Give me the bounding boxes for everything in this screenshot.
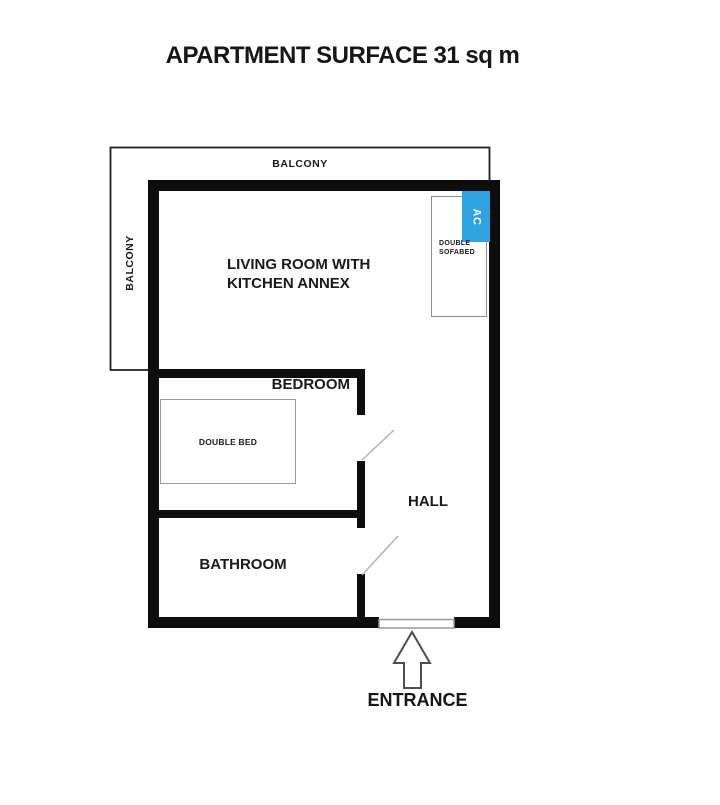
entrance-arrow-icon <box>394 632 430 688</box>
double-sofabed-label-line1: DOUBLE <box>439 239 488 248</box>
hall-label: HALL <box>408 493 468 510</box>
double-sofabed-label-line2: SOFABED <box>439 248 488 257</box>
bedroom-door-swing-line <box>362 430 394 460</box>
double-bed-label: DOUBLE BED <box>199 437 257 447</box>
wall-bathroom-hall-lower <box>357 574 365 628</box>
ac-unit-label: AC <box>470 208 482 225</box>
wall-bedroom-hall-upper <box>357 369 365 415</box>
balcony-left-label: BALCONY <box>122 225 138 301</box>
floor-plan-page: APARTMENT SURFACE 31 sq m BALCONY BALCON… <box>0 0 720 805</box>
ac-unit: AC <box>462 191 490 242</box>
entrance-threshold <box>379 620 454 629</box>
entrance-label: ENTRANCE <box>340 690 495 711</box>
wall-left <box>148 180 159 628</box>
double-sofabed-label: DOUBLE SOFABED <box>439 239 488 257</box>
living-room-label: LIVING ROOM WITH KITCHEN ANNEX <box>227 255 447 293</box>
living-room-label-line1: LIVING ROOM WITH <box>227 255 447 274</box>
wall-top <box>148 180 500 191</box>
living-room-label-line2: KITCHEN ANNEX <box>227 274 447 293</box>
wall-bottom-left-segment <box>148 617 379 628</box>
bedroom-label: BEDROOM <box>238 376 350 393</box>
wall-bathroom-top <box>148 510 365 518</box>
double-bed: DOUBLE BED <box>160 399 296 484</box>
balcony-top-label: BALCONY <box>110 147 490 181</box>
wall-right <box>489 180 500 628</box>
page-title: APARTMENT SURFACE 31 sq m <box>100 42 585 70</box>
wall-bedroom-hall-lower <box>357 461 365 518</box>
bathroom-door-swing-line <box>362 536 398 575</box>
wall-bottom-right-segment <box>454 617 500 628</box>
wall-bathroom-hall-upper <box>357 510 365 528</box>
floor-plan-drawing <box>0 0 720 805</box>
bathroom-label: BATHROOM <box>168 556 318 573</box>
